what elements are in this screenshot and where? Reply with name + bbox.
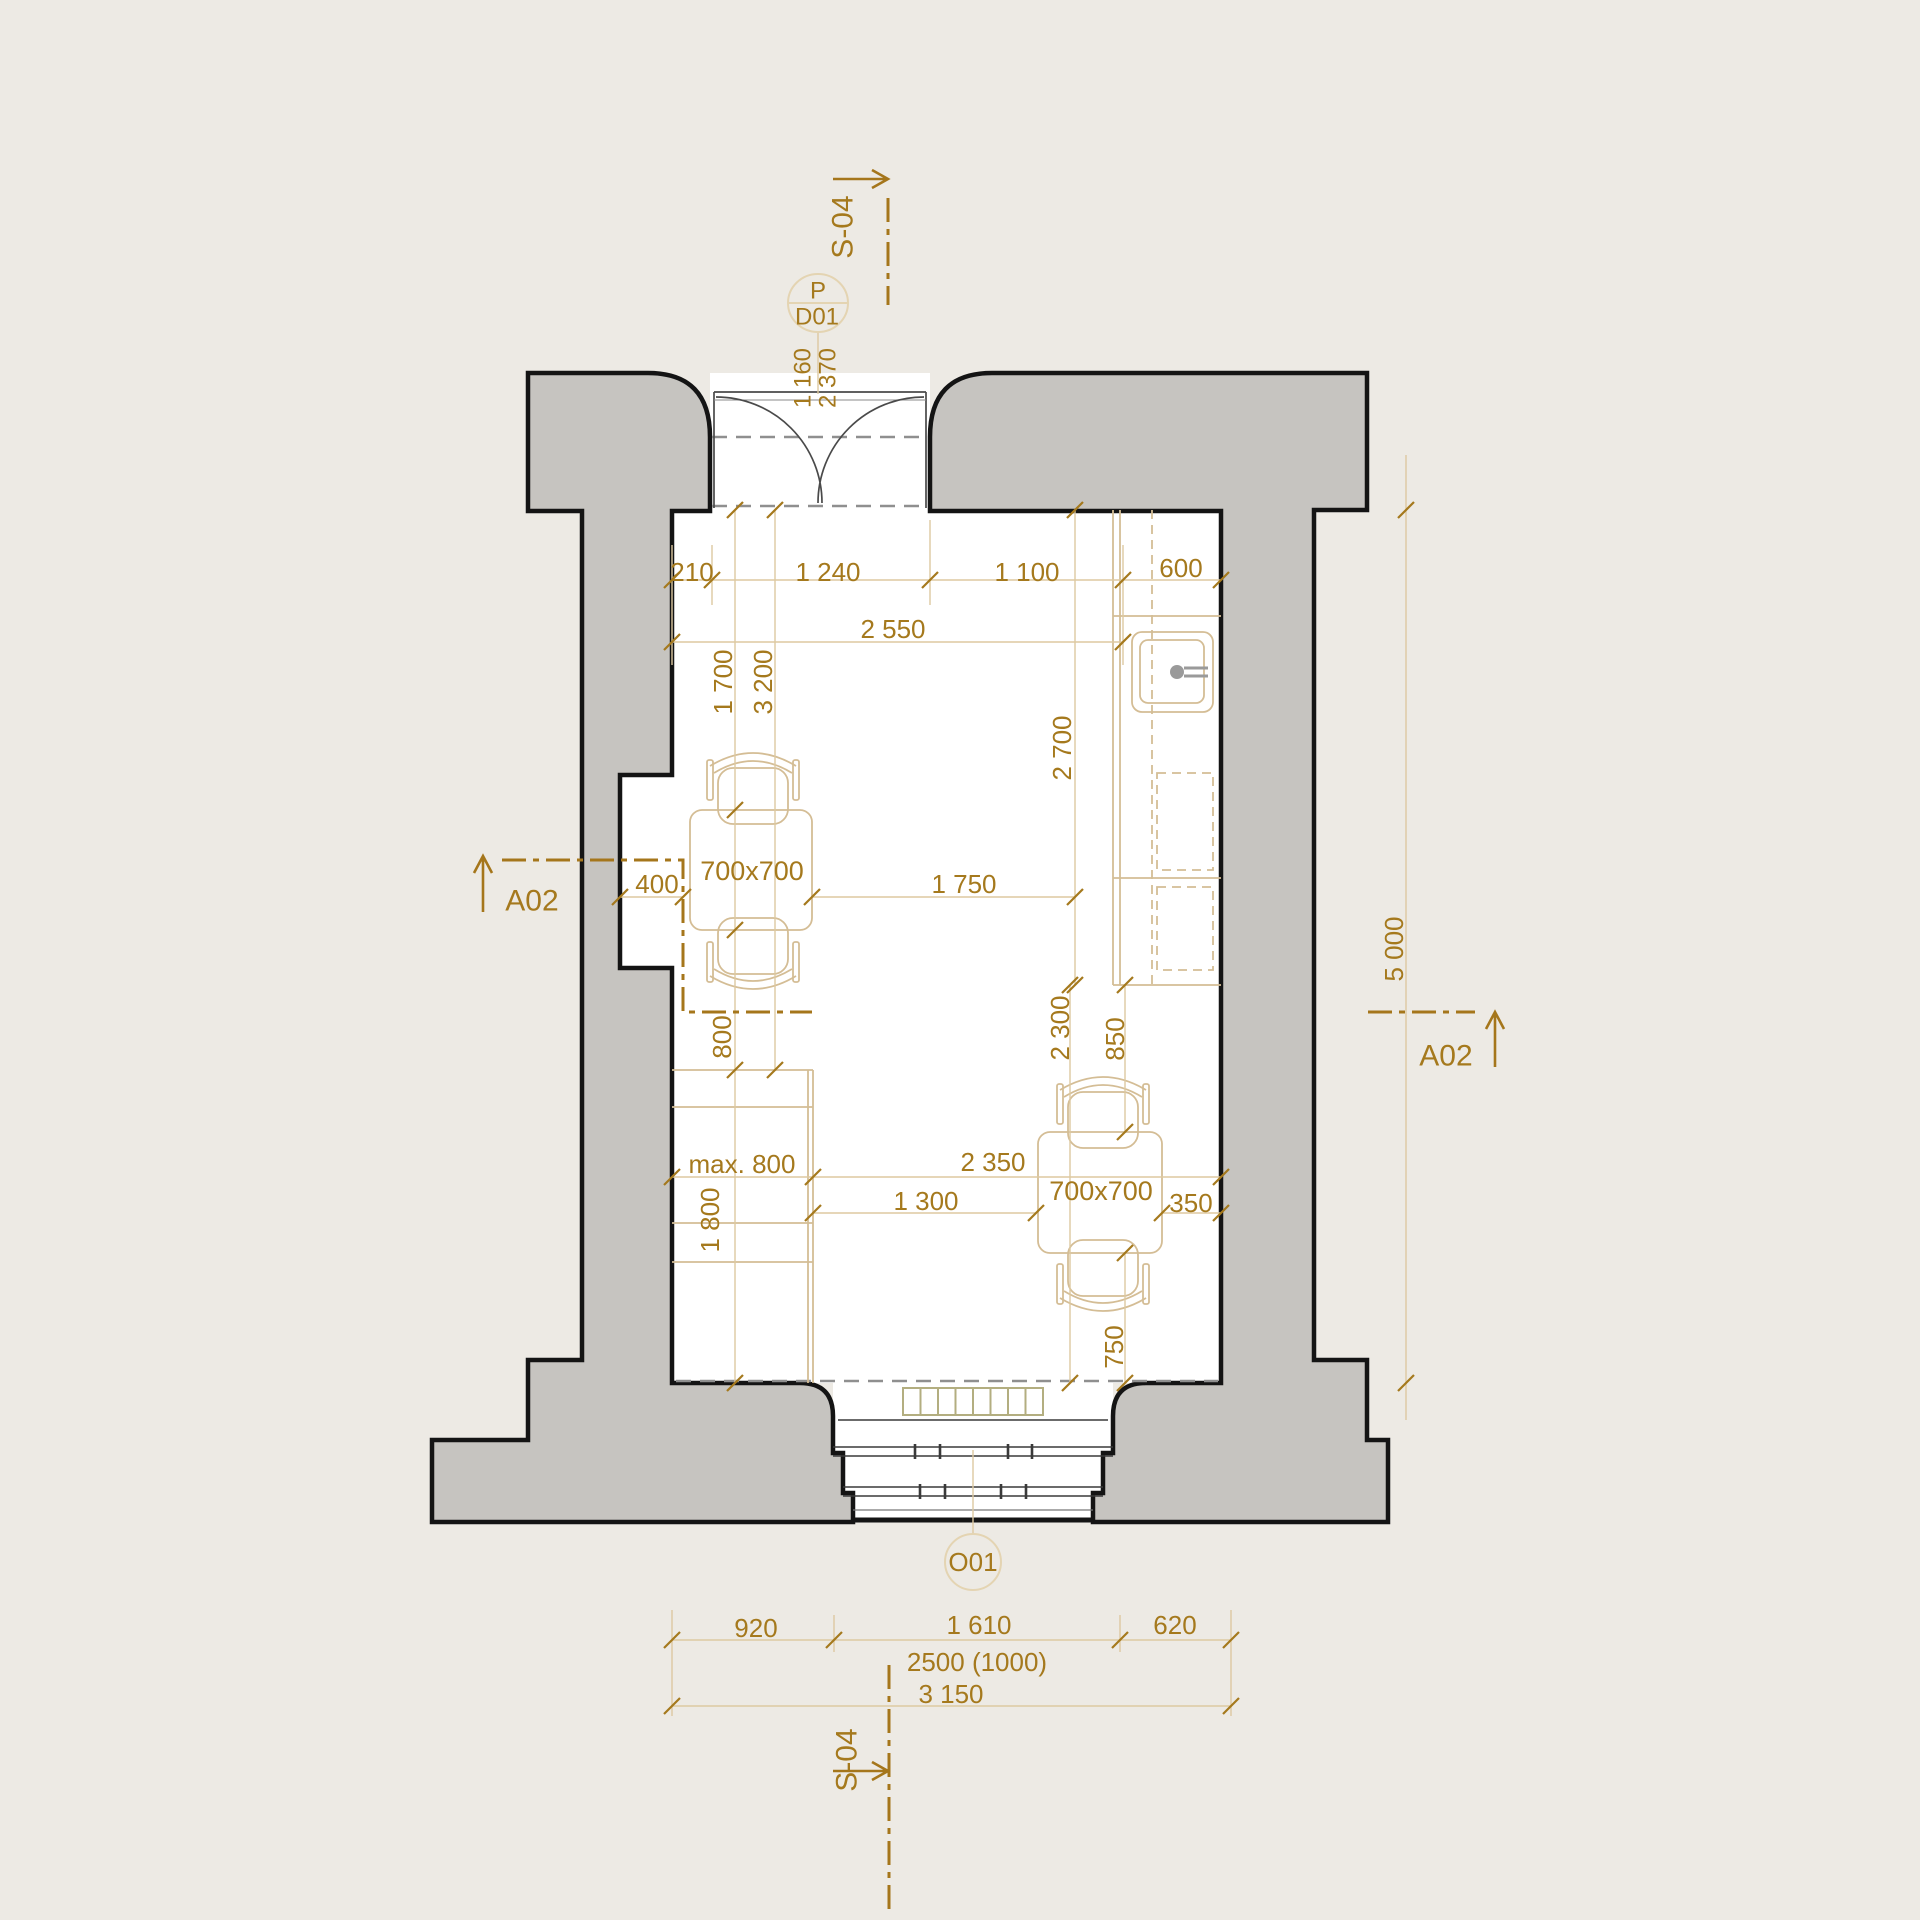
dim-210: 210 (670, 557, 713, 587)
dim-600: 600 (1159, 553, 1202, 583)
door-dim-width: 1 160 (790, 348, 817, 408)
dim-2550: 2 550 (860, 614, 925, 644)
floor-plan-svg: 210 1 240 1 100 600 2 550 1 700 3 200 2 … (0, 0, 1920, 1920)
section-label-s04-bottom: S-04 (831, 1728, 864, 1791)
dim-1750: 1 750 (931, 869, 996, 899)
dim-620: 620 (1153, 1610, 1196, 1640)
dim-350: 350 (1169, 1188, 1212, 1218)
dim-2700: 2 700 (1047, 715, 1077, 780)
dim-5000: 5 000 (1379, 916, 1409, 981)
floor-areas (620, 373, 1221, 1522)
dim-1610: 1 610 (946, 1610, 1011, 1640)
dim-1700: 1 700 (708, 649, 738, 714)
dim-1240: 1 240 (795, 557, 860, 587)
dim-2500-1000: 2500 (1000) (907, 1647, 1047, 1677)
dim-920: 920 (734, 1613, 777, 1643)
section-label-a02-right: A02 (1419, 1040, 1472, 1073)
section-label-s04-top: S-04 (827, 195, 860, 258)
dim-2300: 2 300 (1045, 995, 1075, 1060)
dim-1800: 1 800 (695, 1187, 725, 1252)
table-left-label: 700x700 (700, 856, 804, 886)
dim-1100: 1 100 (994, 557, 1059, 587)
dim-850: 850 (1100, 1017, 1130, 1060)
door-dim-height: 2 370 (815, 348, 842, 408)
window-tag: O01 (948, 1547, 997, 1577)
floor-plan-page: 210 1 240 1 100 600 2 550 1 700 3 200 2 … (0, 0, 1920, 1920)
door-tag: D01 (795, 304, 839, 331)
dim-800: 800 (707, 1015, 737, 1058)
dim-1300: 1 300 (893, 1186, 958, 1216)
door-type-label: P (810, 278, 826, 305)
dim-max-800: max. 800 (689, 1149, 796, 1179)
dim-3200: 3 200 (748, 649, 778, 714)
dim-2350: 2 350 (960, 1147, 1025, 1177)
dim-750: 750 (1099, 1325, 1129, 1368)
dim-3150: 3 150 (918, 1679, 983, 1709)
section-label-a02-left: A02 (505, 885, 558, 918)
dim-400: 400 (635, 869, 678, 899)
table-right-label: 700x700 (1049, 1176, 1153, 1206)
